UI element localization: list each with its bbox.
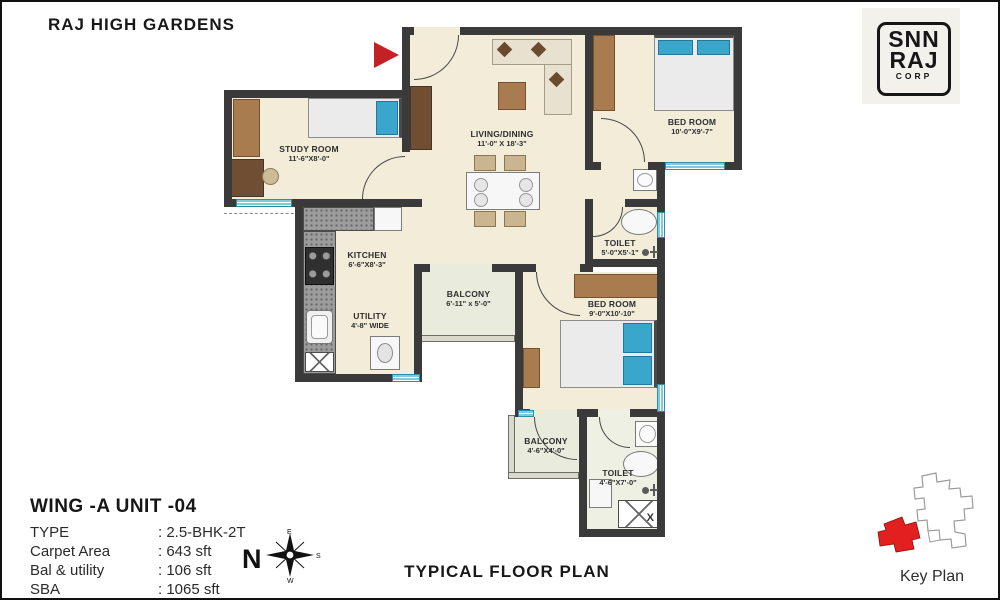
room-dims: 11'-6"X8'-0": [254, 155, 364, 164]
room-label-toilet1: TOILET 5'-0"X5'-1": [590, 239, 650, 257]
balcony2-railing-bottom: [508, 472, 579, 479]
room-label-utility: UTILITY 4'-8" WIDE: [332, 312, 408, 330]
room-dims: 6'-11" x 5'-0": [422, 300, 515, 309]
entrance-arrow-icon: [374, 42, 399, 68]
info-value: : 2.5-BHK-2T: [158, 524, 246, 541]
brand-logo: SNN RAJ CORP: [862, 8, 960, 104]
shaft-label: X: [647, 512, 654, 524]
info-label: Bal & utility: [30, 561, 158, 580]
dining-chair: [504, 155, 526, 171]
study-desk: [231, 159, 264, 197]
floor-patch-balcony2-door: [530, 409, 577, 417]
room-dims: 11'-0" X 18'-3": [452, 140, 552, 149]
plan-type-title: TYPICAL FLOOR PLAN: [377, 562, 637, 582]
floor-patch-balcony1-door: [430, 264, 492, 272]
balcony1-railing: [414, 335, 515, 342]
wall-segment: [585, 199, 593, 207]
shower-dot: [642, 487, 649, 494]
wall-segment: [515, 264, 523, 417]
bedroom1-wardrobe: [593, 35, 615, 111]
kitchen-fridge: [374, 207, 402, 231]
bedroom2-dresser: [523, 348, 540, 388]
compass-east-label: E: [287, 529, 292, 536]
window: [518, 410, 534, 417]
info-value: : 1065 sft: [158, 581, 220, 598]
bedroom1-pillow: [658, 40, 693, 55]
key-plan-building-outline: [914, 473, 973, 548]
toilet1-wc: [621, 209, 657, 235]
utility-washing-machine: [370, 336, 400, 370]
dining-plate: [474, 178, 488, 192]
unit-heading: WING -A UNIT -04: [30, 496, 246, 518]
unit-info-row: SBA: 1065 sft: [30, 580, 246, 599]
info-label: Carpet Area: [30, 542, 158, 561]
window: [236, 199, 292, 207]
compass-west-label: W: [287, 578, 294, 584]
room-label-kitchen: KITCHEN 6'-6"X8'-3": [331, 251, 403, 269]
key-plan-highlighted-unit: [878, 517, 920, 552]
kitchen-cabinet-x: [305, 352, 334, 372]
bedroom2-wardrobe: [574, 274, 658, 298]
room-dims: 4'-6"X4'-0": [513, 447, 579, 456]
info-value: : 106 sft: [158, 562, 211, 579]
room-dims: 4'-6"X7'-0": [585, 479, 651, 488]
dining-plate: [474, 193, 488, 207]
room-label-bedroom1: BED ROOM 10'-0"X9'-7": [642, 118, 742, 136]
logo-line2: RAJ: [880, 50, 948, 71]
compass-north-label: N: [242, 544, 262, 574]
compass-south-label: S: [316, 553, 321, 560]
room-dims: 9'-0"X10'-10": [560, 310, 664, 319]
wall-segment: [492, 264, 536, 272]
dining-chair: [474, 211, 496, 227]
window: [665, 162, 725, 170]
chajja-projection-line: [224, 213, 304, 214]
key-plan-building-wing: [928, 530, 940, 542]
wall-segment: [580, 264, 593, 272]
bedroom1-pillow: [697, 40, 730, 55]
room-dims: 10'-0"X9'-7": [642, 128, 742, 137]
room-label-bedroom2: BED ROOM 9'-0"X10'-10": [560, 300, 664, 318]
floor-patch-main-door: [414, 27, 460, 35]
room-dims: 4'-8" WIDE: [332, 322, 408, 331]
floor-patch-toilet2-door: [598, 409, 630, 417]
dining-table: [466, 172, 540, 210]
room-dims: 6'-6"X8'-3": [331, 261, 403, 270]
bedroom2-pillow: [623, 323, 652, 353]
study-chair: [262, 168, 279, 185]
wall-segment: [414, 268, 422, 382]
compass-rose-icon: N E S W: [240, 526, 322, 589]
floor-plan-page: RAJ HIGH GARDENS SNN RAJ CORP: [0, 0, 1000, 600]
wall-segment: [224, 90, 410, 98]
wall-segment: [625, 199, 665, 207]
wall-segment: [295, 199, 303, 382]
room-label-living: LIVING/DINING 11'-0" X 18'-3": [452, 130, 552, 148]
service-shaft: X: [618, 500, 660, 528]
dining-chair: [474, 155, 496, 171]
wall-segment: [460, 27, 742, 35]
info-label: SBA: [30, 580, 158, 599]
dining-chair: [504, 211, 526, 227]
kitchen-counter-top: [303, 207, 374, 231]
info-label: TYPE: [30, 523, 158, 542]
dining-plate: [519, 178, 533, 192]
window: [657, 384, 665, 412]
wall-segment: [585, 162, 601, 170]
wall-segment: [579, 529, 665, 537]
unit-info-row: Bal & utility: 106 sft: [30, 561, 246, 580]
unit-info-row: TYPE: 2.5-BHK-2T: [30, 523, 246, 542]
floor-patch-bed2-door: [536, 264, 580, 272]
wall-segment: [585, 259, 665, 267]
shower-bar: [653, 484, 655, 496]
kitchen-stove: [305, 247, 334, 285]
key-plan: Key Plan: [870, 468, 994, 571]
room-label-balcony1: BALCONY 6'-11" x 5'-0": [422, 290, 515, 308]
sofa-side: [544, 64, 572, 115]
room-label-study: STUDY ROOM 11'-6"X8'-0": [254, 145, 364, 163]
shower-bar: [653, 246, 655, 258]
wall-segment: [224, 90, 232, 207]
compass-hub: [286, 551, 294, 559]
room-label-toilet2: TOILET 4'-6"X7'-0": [585, 469, 651, 487]
hall-washbasin: [633, 169, 657, 191]
brand-logo-box: SNN RAJ CORP: [877, 22, 951, 96]
wall-segment: [414, 264, 430, 272]
kitchen-sink: [306, 310, 333, 344]
bedroom2-pillow: [623, 356, 652, 385]
compass-svg: N E S W: [240, 526, 322, 584]
window: [392, 374, 420, 382]
key-plan-svg: [870, 468, 994, 566]
dining-plate: [519, 193, 533, 207]
key-plan-label: Key Plan: [872, 568, 992, 586]
foyer-cabinet: [410, 86, 432, 150]
coffee-table: [498, 82, 526, 110]
window: [657, 212, 665, 238]
project-title: RAJ HIGH GARDENS: [48, 15, 235, 35]
wall-segment: [585, 27, 593, 170]
unit-info-block: WING -A UNIT -04 TYPE: 2.5-BHK-2T Carpet…: [30, 496, 246, 599]
room-label-balcony2: BALCONY 4'-6"X4'-0": [513, 437, 579, 455]
info-value: : 643 sft: [158, 543, 211, 560]
study-bed-pillow: [376, 101, 398, 135]
floor-patch-toilet1-door: [593, 199, 625, 207]
unit-info-row: Carpet Area: 643 sft: [30, 542, 246, 561]
room-dims: 5'-0"X5'-1": [590, 249, 650, 258]
wall-segment: [734, 27, 742, 170]
